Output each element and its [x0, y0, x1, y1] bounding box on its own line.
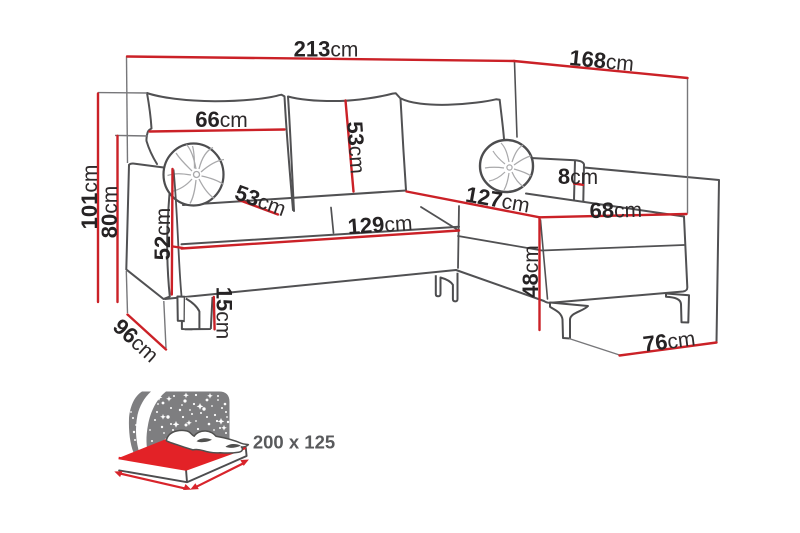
svg-text:200 x 125: 200 x 125: [253, 432, 335, 453]
svg-text:80cm: 80cm: [97, 186, 122, 238]
svg-text:129cm: 129cm: [347, 210, 413, 239]
svg-text:15cm: 15cm: [212, 287, 237, 339]
svg-text:68cm: 68cm: [589, 197, 642, 223]
svg-text:66cm: 66cm: [195, 107, 247, 132]
svg-text:52cm: 52cm: [150, 208, 175, 260]
svg-text:53cm: 53cm: [342, 120, 371, 174]
svg-text:8cm: 8cm: [558, 164, 598, 189]
svg-text:48cm: 48cm: [518, 245, 543, 297]
svg-text:213cm: 213cm: [294, 37, 359, 62]
